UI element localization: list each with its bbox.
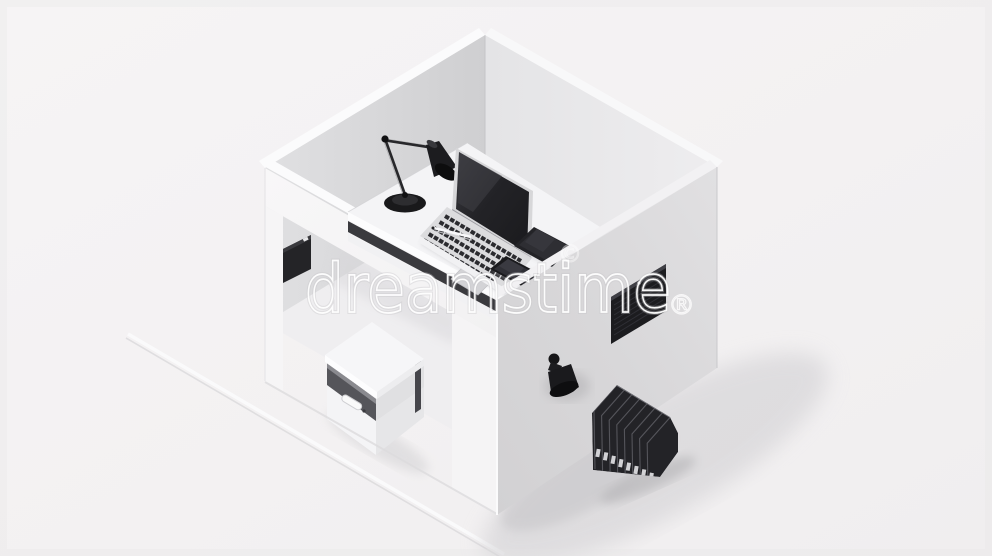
isometric-office-render: dreamstime dreamstime ® © xyxy=(0,0,992,556)
watermark: dreamstime dreamstime ® © xyxy=(305,240,695,329)
lamp-joint-base xyxy=(402,192,408,198)
stylus-tip xyxy=(432,227,435,230)
lamp-joint xyxy=(381,135,388,142)
front-left-wall-column xyxy=(452,312,497,515)
front-left-wall-pillar xyxy=(265,206,283,391)
watermark-text: dreamstime xyxy=(305,250,671,329)
watermark-tile-glyph: © xyxy=(558,240,582,268)
sconce-mount xyxy=(549,354,560,365)
drawer-knob-dot xyxy=(362,409,365,412)
watermark-registered-mark: ® xyxy=(668,290,695,321)
stock-image-canvas: dreamstime dreamstime ® © xyxy=(0,0,992,556)
